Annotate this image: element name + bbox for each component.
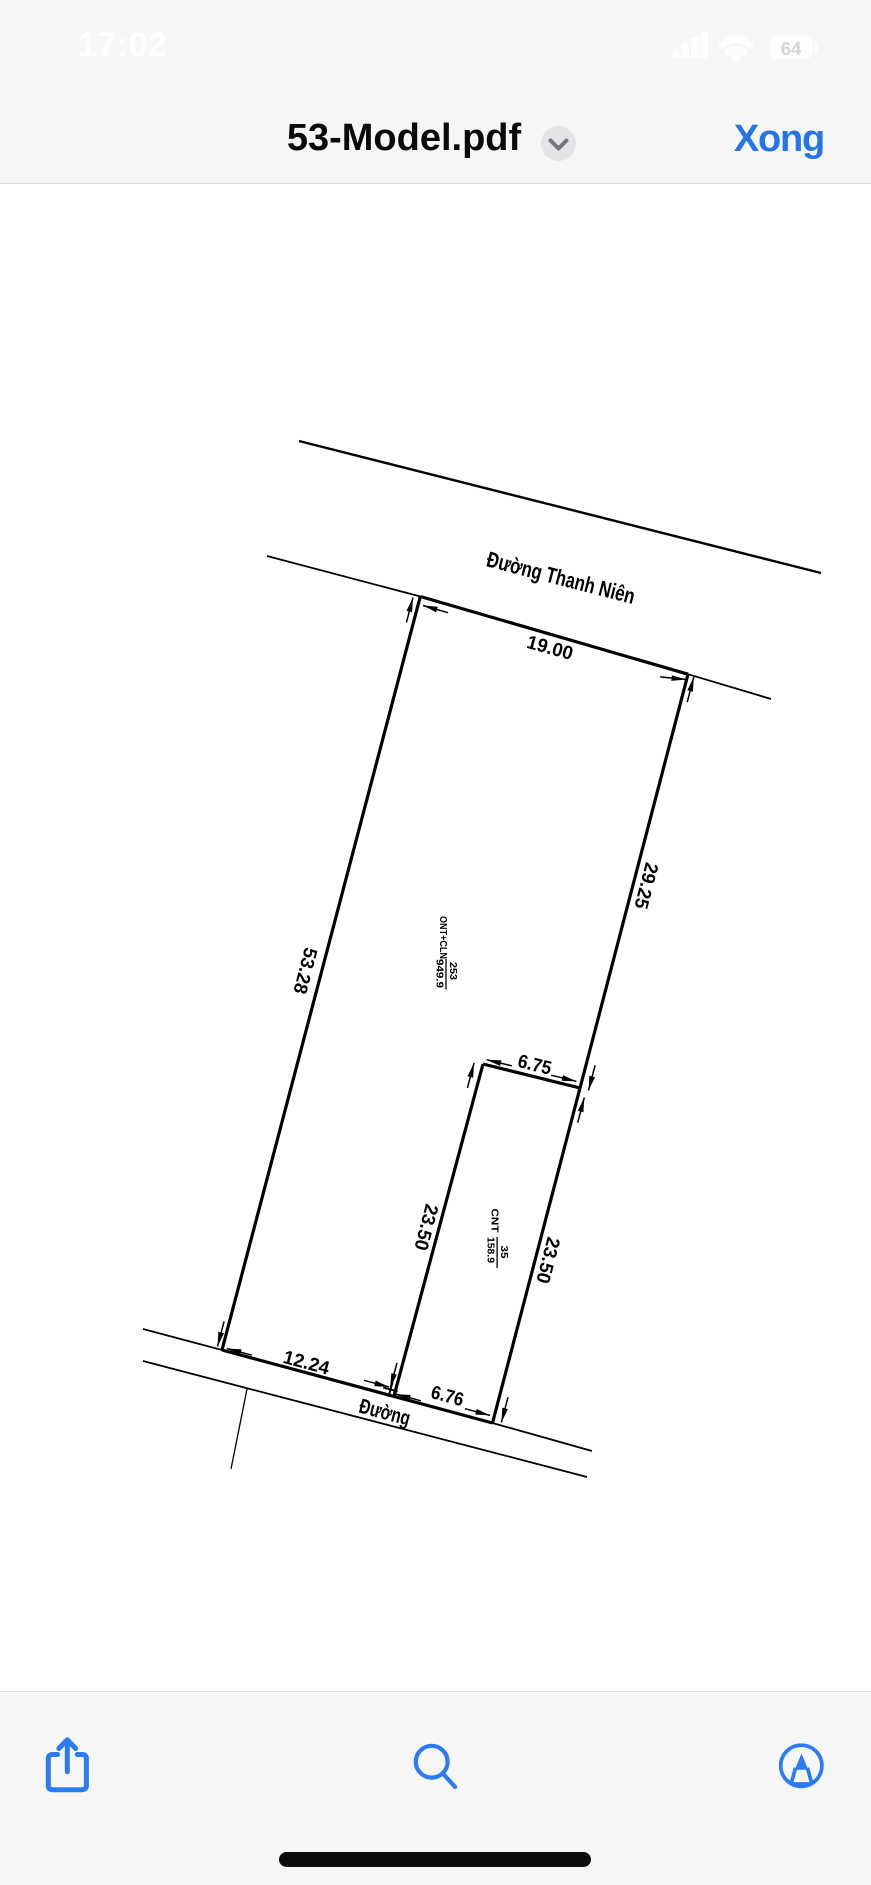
svg-text:949.9: 949.9: [434, 959, 446, 988]
svg-text:19.00: 19.00: [524, 632, 575, 665]
svg-text:64: 64: [781, 38, 802, 59]
svg-text:253: 253: [447, 962, 459, 980]
svg-text:158.9: 158.9: [485, 1237, 497, 1263]
svg-text:23.50: 23.50: [409, 1202, 441, 1253]
svg-text:12.24: 12.24: [281, 1347, 332, 1380]
svg-text:Đường Thanh Niên: Đường Thanh Niên: [484, 547, 637, 609]
svg-text:35: 35: [498, 1246, 510, 1259]
svg-text:CNT: CNT: [489, 1209, 501, 1234]
svg-text:ONT+CLN: ONT+CLN: [437, 916, 449, 959]
svg-text:6.75: 6.75: [515, 1051, 553, 1080]
